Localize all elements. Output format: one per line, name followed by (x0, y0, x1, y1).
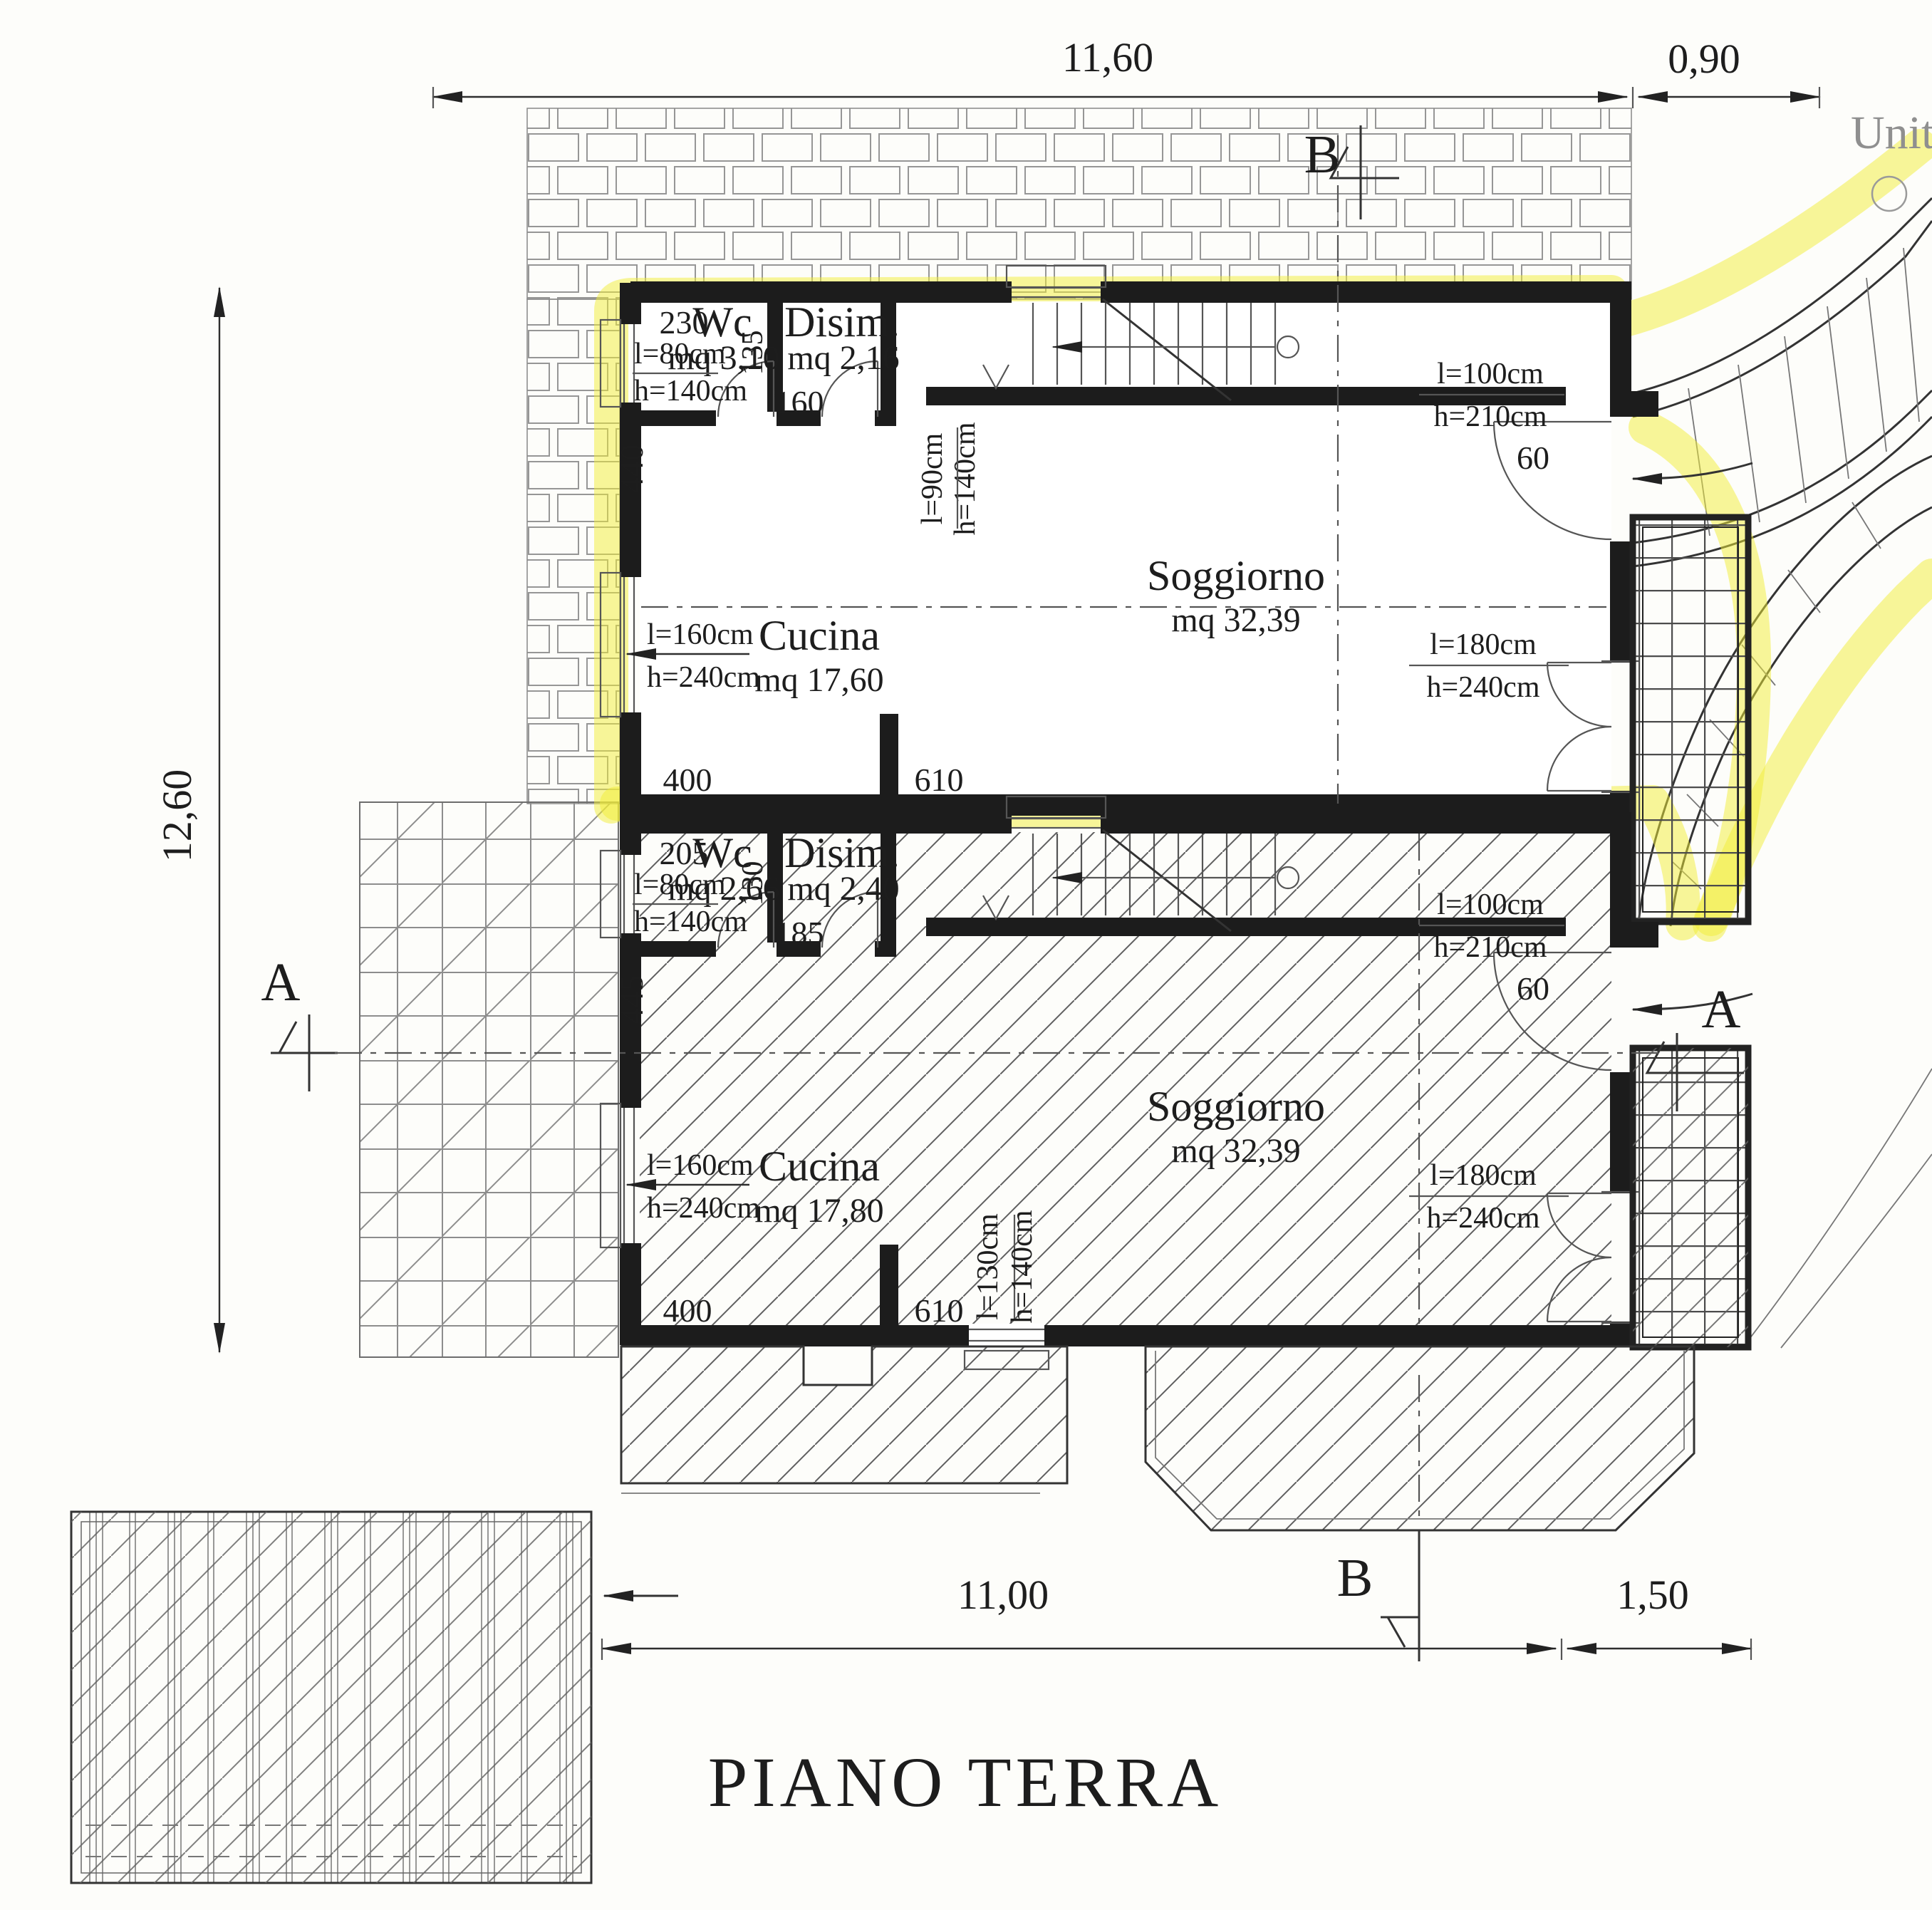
lower-french-h: h=240cm (1427, 1202, 1540, 1235)
upper-room-cucina: Cucina (759, 612, 880, 659)
lower-wc-window-w: l=80cm (634, 868, 726, 901)
dim-top-right: 0,90 (1668, 36, 1740, 82)
upper-entry-w: l=100cm (1437, 358, 1544, 390)
upper-balcony (1633, 517, 1748, 922)
lower-entry-h: h=210cm (1434, 931, 1547, 964)
upper-area-disim: mq 2,16 (787, 339, 899, 377)
lower-dim-left-wall: 445 (613, 975, 650, 1024)
site-unit-label: Unit (1851, 107, 1932, 159)
section-marker-a-left (271, 1014, 338, 1091)
dim-bottom-main: 11,00 (957, 1572, 1049, 1618)
dim-bottom-right: 1,50 (1616, 1572, 1689, 1618)
section-marker-b-bottom (1381, 1530, 1419, 1661)
upper-dim-left-wall: 440 (613, 445, 650, 494)
upper-stair-window-h: h=140cm (949, 422, 982, 535)
dim-left: 12,60 (154, 769, 200, 863)
lower-terrace-right (1146, 1346, 1694, 1530)
lower-area-cucina: mq 17,80 (754, 1192, 883, 1230)
patio-tiled-area (360, 802, 618, 1357)
floor-plan-drawing: 11,60 0,90 12,60 11,00 1,50 B B A A Unit… (0, 0, 1932, 1910)
pergola-area (71, 1512, 591, 1883)
lower-cucina-window-h: h=240cm (647, 1192, 760, 1225)
lower-soggiorno-window-h: h=140cm (1006, 1210, 1039, 1323)
upper-stair-window-w: l=90cm (916, 432, 949, 524)
marker-a-left-label: A (261, 953, 301, 1012)
upper-area-soggiorno: mq 32,39 (1171, 601, 1300, 639)
upper-dim-soggiorno-width: 610 (915, 762, 964, 798)
lower-soggiorno-window-w: l=130cm (972, 1213, 1004, 1320)
upper-area-cucina: mq 17,60 (754, 661, 883, 699)
upper-entry-h: h=210cm (1434, 400, 1547, 433)
lower-room-soggiorno: Soggiorno (1147, 1083, 1325, 1130)
lower-area-disim: mq 2,40 (787, 870, 899, 908)
lower-terrace-left (621, 1346, 1067, 1493)
lower-dim-entry-jamb: 60 (1517, 970, 1549, 1007)
lower-entry-w: l=100cm (1437, 888, 1544, 921)
lower-dim-cucina-width: 400 (663, 1292, 712, 1329)
upper-dim-cucina-width: 400 (663, 762, 712, 798)
lower-french-w: l=180cm (1430, 1159, 1537, 1192)
lower-dim-soggiorno-width: 610 (915, 1292, 964, 1329)
upper-wc-window-h: h=140cm (634, 375, 747, 408)
upper-french-w: l=180cm (1430, 628, 1537, 661)
upper-room-soggiorno: Soggiorno (1147, 552, 1325, 599)
upper-french-h: h=240cm (1427, 671, 1540, 704)
lower-cucina-window-w: l=160cm (647, 1149, 754, 1182)
upper-wc-window-w: l=80cm (634, 338, 726, 370)
marker-a-right-label: A (1702, 980, 1741, 1039)
upper-dim-entry-jamb: 60 (1517, 440, 1549, 476)
upper-dim-wc-door: 160 (775, 384, 824, 420)
upper-cucina-window-h: h=240cm (647, 661, 760, 694)
page-title: PIANO TERRA (708, 1743, 1223, 1822)
lower-dim-wc-door: 185 (775, 915, 824, 951)
lower-room-cucina: Cucina (759, 1143, 880, 1190)
lower-area-soggiorno: mq 32,39 (1171, 1132, 1300, 1170)
floor-plan-page: 11,60 0,90 12,60 11,00 1,50 B B A A Unit… (0, 0, 1932, 1910)
dim-top-main: 11,60 (1062, 34, 1153, 81)
marker-b-top-label: B (1304, 125, 1341, 185)
upper-cucina-window-w: l=160cm (647, 618, 754, 651)
lower-wc-window-h: h=140cm (634, 905, 747, 938)
marker-b-bottom-label: B (1337, 1548, 1373, 1608)
